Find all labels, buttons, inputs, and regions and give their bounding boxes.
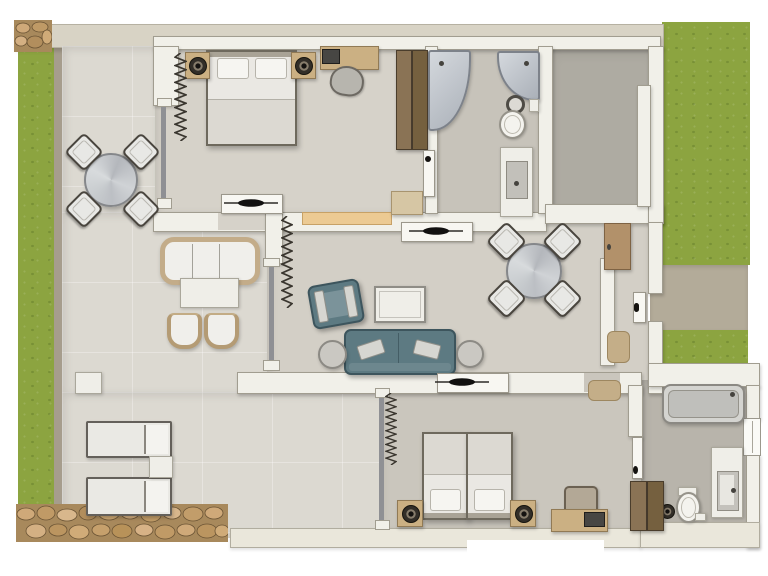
nightstand bbox=[510, 500, 536, 527]
living-terrace-glass-front bbox=[269, 262, 274, 362]
side-table bbox=[456, 340, 484, 368]
wicker-chair bbox=[204, 313, 239, 349]
wall-adjoining-bottom bbox=[545, 204, 664, 224]
bedroom1-terrace-glass-door bbox=[161, 102, 166, 200]
pillow bbox=[255, 58, 287, 79]
lounger-side-table bbox=[149, 456, 173, 478]
wardrobe bbox=[396, 50, 428, 150]
glass-cap bbox=[157, 98, 172, 107]
wall-bathroom2-left bbox=[628, 385, 643, 437]
sun-lounger bbox=[86, 421, 172, 458]
curtain-icon bbox=[385, 393, 397, 465]
coffee-table bbox=[374, 286, 426, 323]
sun-lounger bbox=[86, 477, 172, 516]
wicker-chair bbox=[167, 313, 202, 349]
glass-cap bbox=[263, 258, 280, 267]
building-notch bbox=[467, 540, 604, 576]
glass-cap bbox=[375, 520, 390, 530]
door-handle-icon bbox=[222, 198, 280, 208]
nightstand bbox=[291, 52, 316, 79]
door-handle-icon bbox=[425, 156, 431, 162]
vanity bbox=[711, 447, 743, 518]
glass-cap bbox=[263, 360, 280, 371]
lawn-left bbox=[18, 24, 54, 536]
wall-bathroom2-right-upper bbox=[746, 385, 760, 420]
hall-cabinet bbox=[604, 223, 631, 270]
monitor bbox=[584, 512, 605, 527]
pillow bbox=[474, 489, 505, 511]
sofa bbox=[344, 329, 456, 375]
bathroom2-window bbox=[743, 418, 761, 456]
toilet bbox=[499, 110, 526, 139]
pass-through-counter bbox=[302, 212, 392, 225]
speaker-icon bbox=[295, 57, 313, 75]
curtain-icon bbox=[281, 216, 293, 308]
door-handle-icon bbox=[433, 377, 491, 387]
paper-holder bbox=[529, 99, 539, 112]
armchair bbox=[307, 278, 366, 330]
nightstand bbox=[185, 52, 210, 79]
bench bbox=[391, 191, 423, 215]
bathtub bbox=[662, 384, 745, 424]
floor-plan bbox=[0, 0, 768, 576]
wardrobe bbox=[630, 481, 664, 531]
nightstand bbox=[397, 500, 423, 527]
lawn-right-lower bbox=[662, 330, 748, 364]
adjoining-room-floor bbox=[540, 46, 650, 222]
speaker-icon bbox=[515, 505, 533, 523]
outdoor-coffee-table bbox=[180, 278, 239, 308]
door-handle-icon bbox=[407, 226, 465, 236]
pillow bbox=[430, 489, 461, 511]
side-table bbox=[318, 340, 347, 369]
vanity bbox=[500, 147, 533, 217]
square-side-table bbox=[75, 372, 102, 394]
speaker-icon bbox=[189, 57, 207, 75]
lawn-right-upper bbox=[662, 22, 750, 265]
wall-bathroom1-right bbox=[538, 46, 553, 214]
wall-adjoining-pillar bbox=[637, 85, 651, 207]
pillow bbox=[217, 58, 249, 79]
bedroom2-glass-wall bbox=[379, 392, 384, 528]
double-bed bbox=[206, 50, 297, 146]
door-handle-icon bbox=[633, 466, 638, 474]
twin-bed bbox=[422, 432, 469, 520]
door-handle-icon bbox=[634, 303, 639, 312]
speaker-icon bbox=[402, 505, 420, 523]
doormat bbox=[607, 331, 630, 363]
doormat bbox=[588, 380, 621, 401]
small-step bbox=[695, 513, 706, 521]
curtain-icon bbox=[174, 53, 187, 141]
entry-walkway bbox=[650, 265, 748, 330]
laptop bbox=[322, 49, 340, 64]
wall-right-exterior-upper bbox=[648, 222, 663, 294]
twin-bed bbox=[466, 432, 513, 520]
glass-cap bbox=[157, 198, 172, 209]
stone-patch-top-left bbox=[14, 20, 52, 52]
wall-top-inner bbox=[153, 36, 661, 50]
